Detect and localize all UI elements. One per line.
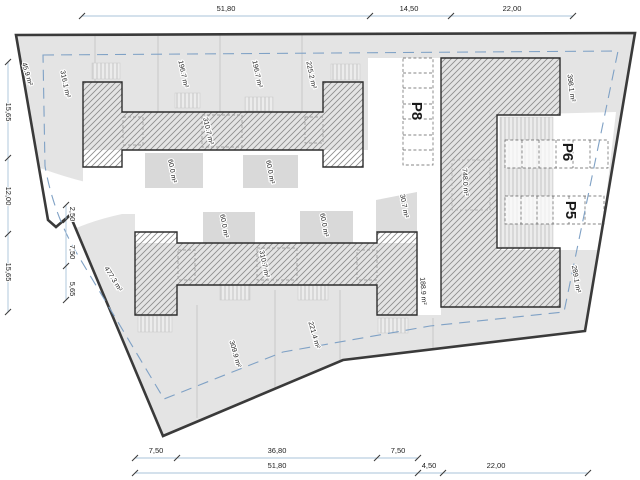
parking-p5 (505, 196, 604, 224)
dim-left-inner-2: 7,50 (68, 245, 77, 260)
dim-top-3: 22,00 (503, 4, 522, 13)
dim-bottom-inner-1: 7,50 (149, 446, 164, 455)
parking-label-p8: P8 (408, 102, 425, 120)
parking-label-p6: P6 (559, 143, 576, 161)
dim-top-1: 51,80 (217, 4, 236, 13)
parking-p6 (505, 140, 608, 168)
site-plan-drawing: 51,80 14,50 22,00 7,50 36,80 7,50 51,80 … (0, 0, 640, 480)
dim-left-inner-3: 5,65 (68, 282, 77, 297)
terrace-rect (203, 212, 255, 243)
dim-left-outer-2: 12,00 (4, 187, 13, 206)
dim-bottom-inner-2: 36,80 (268, 446, 287, 455)
canopy-strip (500, 117, 553, 247)
dim-bottom-outer-3: 22,00 (487, 461, 506, 470)
dim-bottom-outer-2: 4,50 (422, 461, 437, 470)
dim-left-outer-1: 15,65 (4, 103, 13, 122)
dim-bottom-outer-1: 51,80 (268, 461, 287, 470)
dim-bottom-inner-3: 7,50 (391, 446, 406, 455)
dim-top-2: 14,50 (400, 4, 419, 13)
dim-left-inner-1: 2,50 (68, 207, 77, 222)
site-plan-page: 51,80 14,50 22,00 7,50 36,80 7,50 51,80 … (0, 0, 640, 480)
dim-left-outer-3: 15,65 (4, 263, 13, 282)
parking-label-p5: P5 (562, 201, 579, 219)
